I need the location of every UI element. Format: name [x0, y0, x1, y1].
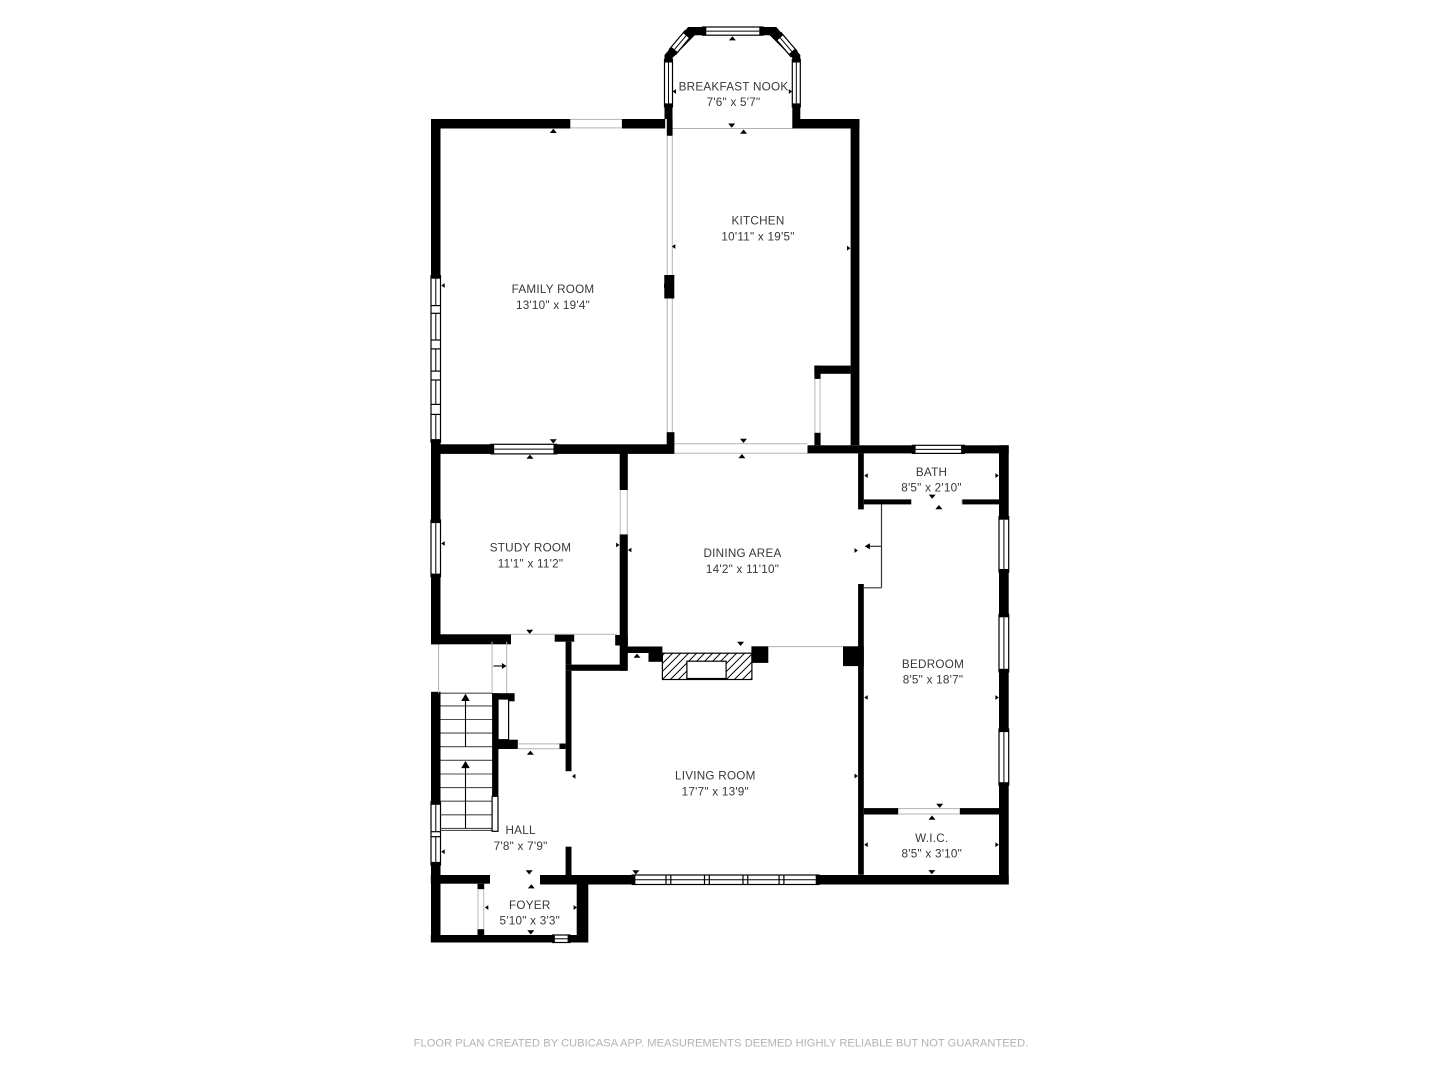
svg-text:8'5" x 3'10": 8'5" x 3'10"	[901, 848, 962, 861]
svg-text:STUDY ROOM: STUDY ROOM	[490, 542, 572, 555]
svg-text:BATH: BATH	[916, 466, 947, 479]
svg-text:17'7" x 13'9": 17'7" x 13'9"	[682, 785, 749, 798]
svg-text:FOYER: FOYER	[509, 899, 551, 912]
svg-text:10'11" x 19'5": 10'11" x 19'5"	[721, 230, 794, 243]
svg-text:BREAKFAST NOOK: BREAKFAST NOOK	[679, 80, 789, 93]
svg-text:W.I.C.: W.I.C.	[915, 832, 948, 845]
svg-text:14'2" x 11'10": 14'2" x 11'10"	[706, 563, 779, 576]
svg-text:FLOOR PLAN CREATED BY CUBICASA: FLOOR PLAN CREATED BY CUBICASA APP. MEAS…	[414, 1038, 1029, 1050]
svg-text:8'5" x 2'10": 8'5" x 2'10"	[901, 482, 962, 495]
svg-text:KITCHEN: KITCHEN	[731, 215, 784, 228]
svg-text:11'1" x 11'2": 11'1" x 11'2"	[498, 557, 564, 570]
svg-text:7'8" x 7'9": 7'8" x 7'9"	[494, 840, 548, 853]
svg-text:13'10" x 19'4": 13'10" x 19'4"	[516, 299, 590, 312]
svg-text:7'6" x 5'7": 7'6" x 5'7"	[707, 96, 761, 109]
svg-text:FAMILY ROOM: FAMILY ROOM	[512, 283, 595, 296]
svg-text:5'10" x 3'3": 5'10" x 3'3"	[499, 915, 560, 928]
svg-text:BEDROOM: BEDROOM	[902, 658, 964, 671]
svg-text:HALL: HALL	[505, 824, 535, 837]
svg-text:DINING AREA: DINING AREA	[703, 547, 781, 560]
svg-text:8'5" x 18'7": 8'5" x 18'7"	[903, 674, 964, 687]
svg-text:LIVING ROOM: LIVING ROOM	[675, 770, 756, 783]
